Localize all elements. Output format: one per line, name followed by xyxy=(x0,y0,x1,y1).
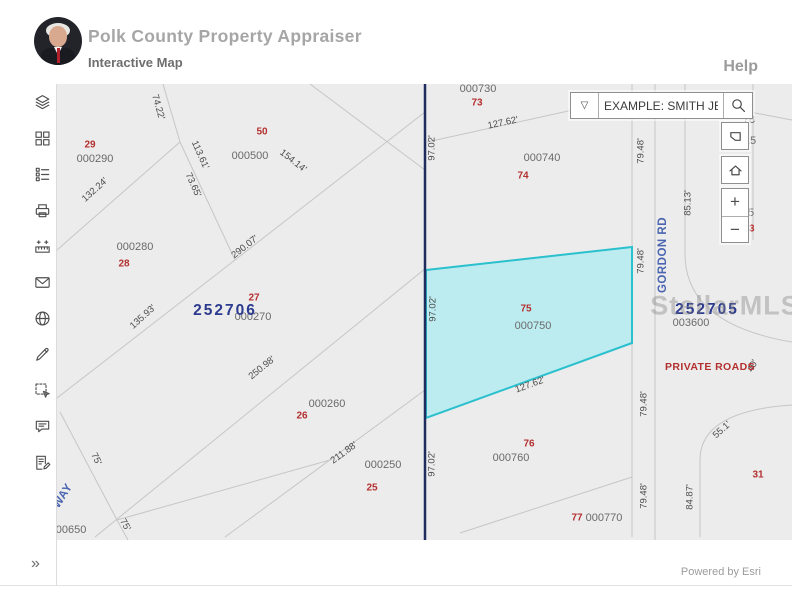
magnifier-icon xyxy=(730,97,747,114)
default-extent-button[interactable] xyxy=(721,122,749,150)
sidebar-button-legend[interactable] xyxy=(0,156,56,192)
parcel-layer xyxy=(57,84,792,540)
comment-icon xyxy=(33,417,52,436)
zoom-in-button[interactable]: + xyxy=(722,189,748,217)
sidebar-button-measure[interactable] xyxy=(0,228,56,264)
road-curve xyxy=(685,254,792,342)
basemap-grid-icon xyxy=(33,129,52,148)
parcel-boundary xyxy=(235,112,425,260)
globe-icon xyxy=(33,309,52,328)
app-title: Polk County Property Appraiser xyxy=(88,26,362,47)
parcel-boundary xyxy=(163,84,180,142)
parcel-boundary xyxy=(180,142,235,260)
selected-parcel[interactable] xyxy=(426,247,632,418)
app-subtitle: Interactive Map xyxy=(88,55,183,70)
sidebar-expand-button[interactable]: » xyxy=(0,555,57,573)
home-icon xyxy=(727,162,744,179)
report-edit-icon xyxy=(33,453,52,472)
zoom-out-button[interactable]: − xyxy=(722,217,748,244)
parcel-boundary xyxy=(117,520,128,540)
envelope-icon xyxy=(33,273,52,292)
select-area-icon xyxy=(33,381,52,400)
avatar xyxy=(34,17,82,65)
print-icon xyxy=(33,201,52,220)
sidebar-button-basemaps[interactable] xyxy=(0,120,56,156)
search-button[interactable] xyxy=(723,93,752,118)
home-button[interactable] xyxy=(721,156,749,184)
default-extent-icon xyxy=(727,128,744,145)
esri-attribution: Powered by Esri xyxy=(681,566,761,578)
parcel-boundary xyxy=(460,477,632,533)
parcel-boundary xyxy=(57,142,180,250)
zoom-controls: + − xyxy=(721,188,749,243)
sidebar: » xyxy=(0,84,57,585)
help-link[interactable]: Help xyxy=(723,58,758,76)
search-dropdown-button[interactable]: ▽ xyxy=(571,93,599,118)
sidebar-button-web-links[interactable] xyxy=(0,300,56,336)
chevron-down-icon: ▽ xyxy=(581,100,589,111)
parcel-boundary xyxy=(95,268,426,537)
sidebar-button-comments[interactable] xyxy=(0,408,56,444)
road-curve xyxy=(700,405,792,537)
header: Polk County Property Appraiser Interacti… xyxy=(0,0,792,84)
layers-icon xyxy=(33,93,52,112)
sidebar-button-select[interactable] xyxy=(0,372,56,408)
sidebar-button-layers[interactable] xyxy=(0,84,56,120)
map-canvas[interactable]: 0002900005000002800002700002600002500007… xyxy=(57,84,792,540)
sidebar-button-share-email[interactable] xyxy=(0,264,56,300)
parcel-boundary xyxy=(117,460,330,520)
search-box: ▽ xyxy=(570,92,753,119)
parcel-boundary xyxy=(60,412,117,520)
parcel-boundary xyxy=(57,260,235,398)
legend-list-icon xyxy=(33,165,52,184)
parcel-boundary xyxy=(225,390,425,537)
measure-icon xyxy=(33,237,52,256)
pencil-icon xyxy=(33,345,52,364)
sidebar-button-draw[interactable] xyxy=(0,336,56,372)
sidebar-button-print[interactable] xyxy=(0,192,56,228)
footer-divider xyxy=(0,585,792,586)
search-input[interactable] xyxy=(599,93,723,118)
sidebar-button-reports[interactable] xyxy=(0,444,56,480)
